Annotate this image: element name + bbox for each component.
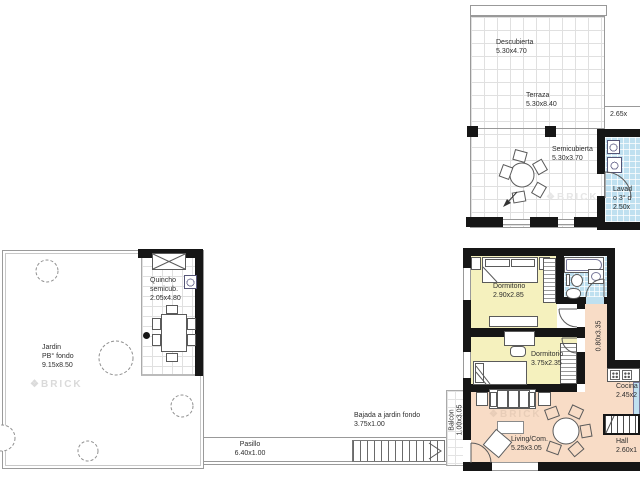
terrace-parapet [470, 5, 607, 16]
quincho-right-wall [195, 249, 203, 376]
bajada-label: Bajada a jardin fondo [354, 411, 420, 420]
toilet-bowl-icon [571, 274, 583, 287]
sofa [489, 389, 536, 409]
terrace-wall-segment [530, 217, 558, 227]
apartment-right-wall [607, 256, 615, 368]
desk-chair [510, 346, 526, 357]
lavadero-left-wall [597, 137, 605, 174]
semicubierta-label: Semicubierta [552, 145, 593, 154]
garden-post [143, 332, 150, 339]
quincho-chair [166, 305, 178, 314]
bidet-icon [566, 288, 581, 299]
brick-logo-icon: ❖ [30, 379, 41, 390]
cocina-dim: 2.45x2 [616, 391, 637, 400]
quincho-chair [166, 353, 178, 362]
bajada-dim: 3.75x1.00 [354, 420, 385, 429]
living-window [492, 462, 538, 471]
desk [504, 331, 535, 346]
sofa-armrest [528, 392, 535, 407]
apartment-top-wall [463, 248, 615, 256]
lavadero-top-wall [597, 129, 640, 137]
jardin-dim: 9.15x8.50 [42, 361, 73, 370]
terrace-wall-segment [466, 217, 503, 227]
garden-stairs [352, 440, 445, 462]
pillow [475, 363, 484, 383]
lavadero-label2: o 3° d [613, 194, 631, 203]
hall-dim: 2.60x1 [616, 446, 637, 455]
balcony-door-opening [463, 440, 471, 463]
pillow [485, 259, 510, 267]
quincho-chair [187, 318, 196, 330]
column [545, 126, 556, 137]
internal-hall-dim: 0.80x3.35 [596, 321, 603, 352]
kitchen-top-wall [613, 360, 640, 368]
nightstand [471, 257, 481, 270]
sink-basin [591, 272, 601, 281]
side-table [476, 392, 488, 406]
parrilla-grill-icon [152, 253, 186, 270]
quincho-label2: semicub. [150, 285, 178, 294]
lavadero-label: Lavad [613, 185, 632, 194]
terraza-label: Terraza [526, 91, 549, 100]
semicubierta-dim: 5.30x3.70 [552, 154, 583, 163]
quincho-label: Quincho [150, 276, 176, 285]
toilet-icon [566, 274, 570, 286]
living-label: Living/Com. [511, 435, 548, 444]
right-passage-dim: 2.65x [610, 110, 627, 119]
hall-left-wall-segment [577, 352, 585, 384]
jardin-label2: PB° fondo [42, 352, 74, 361]
hall-label: Hall [616, 437, 628, 446]
lavadero-dim: 2.50x [613, 203, 630, 212]
apartment-bottom-wall [463, 462, 640, 471]
quincho-dim: 2.05x4.80 [150, 294, 181, 303]
bath-door-opening [586, 297, 604, 304]
dormitorio2-label: Dormitorio [531, 350, 563, 359]
sofa-cushion [497, 390, 508, 408]
laundry-sink-icon [607, 157, 622, 173]
descubierta-label: Descubierta [496, 38, 533, 47]
brick-watermark: ❖BRICK [30, 379, 83, 390]
stove-icon [610, 370, 620, 380]
brick-watermark: ❖BRICK [489, 409, 542, 420]
lavadero-left-wall [597, 196, 605, 223]
sofa-armrest [490, 392, 497, 407]
washing-machine-icon [607, 140, 620, 154]
floor-plan: Descubierta 5.30x4.70 Terraza 5.30x8.40 … [0, 0, 640, 480]
hall-stairs [603, 414, 640, 435]
dresser [489, 316, 538, 327]
quincho-chair [187, 334, 196, 346]
wardrobe [543, 258, 556, 303]
quincho-chair [152, 318, 161, 330]
sink-icon [588, 269, 604, 284]
pillow [511, 259, 535, 267]
brick-logo-icon: ❖ [489, 409, 500, 420]
dormitorio2-dim: 3.75x2.35 [531, 359, 562, 368]
quincho-sink-icon [184, 275, 197, 289]
cocina-label: Cocina [616, 382, 638, 391]
side-table [538, 392, 551, 406]
pasillo-label: Pasillo [240, 440, 261, 449]
living-dim: 5.25x3.05 [511, 444, 542, 453]
quincho-table [161, 314, 187, 352]
terrace-step-line [604, 106, 640, 107]
dormitorio1-label: Dormitorio [493, 282, 525, 291]
semicubierta-divider [471, 128, 604, 129]
brick-logo-icon: ❖ [546, 192, 557, 203]
hall-left-wall-segment [577, 304, 585, 309]
jardin-label: Jardin [42, 343, 61, 352]
terraza-dim: 5.30x8.40 [526, 100, 557, 109]
column [467, 126, 478, 137]
dormitorio1-dim: 2.90x2.85 [493, 291, 524, 300]
balcon-label: Balcon [449, 409, 456, 430]
dormitorio2-window [463, 352, 471, 378]
kitchen-sink-icon [622, 370, 632, 380]
quincho-chair [152, 334, 161, 346]
brick-watermark: ❖BRICK [546, 192, 599, 203]
pasillo-dim: 6.40x1.00 [235, 449, 266, 458]
hall-left-wall-segment [577, 327, 585, 338]
dormitorio1-window [463, 268, 471, 300]
sofa-cushion [508, 390, 519, 408]
descubierta-dim: 5.30x4.70 [496, 47, 527, 56]
